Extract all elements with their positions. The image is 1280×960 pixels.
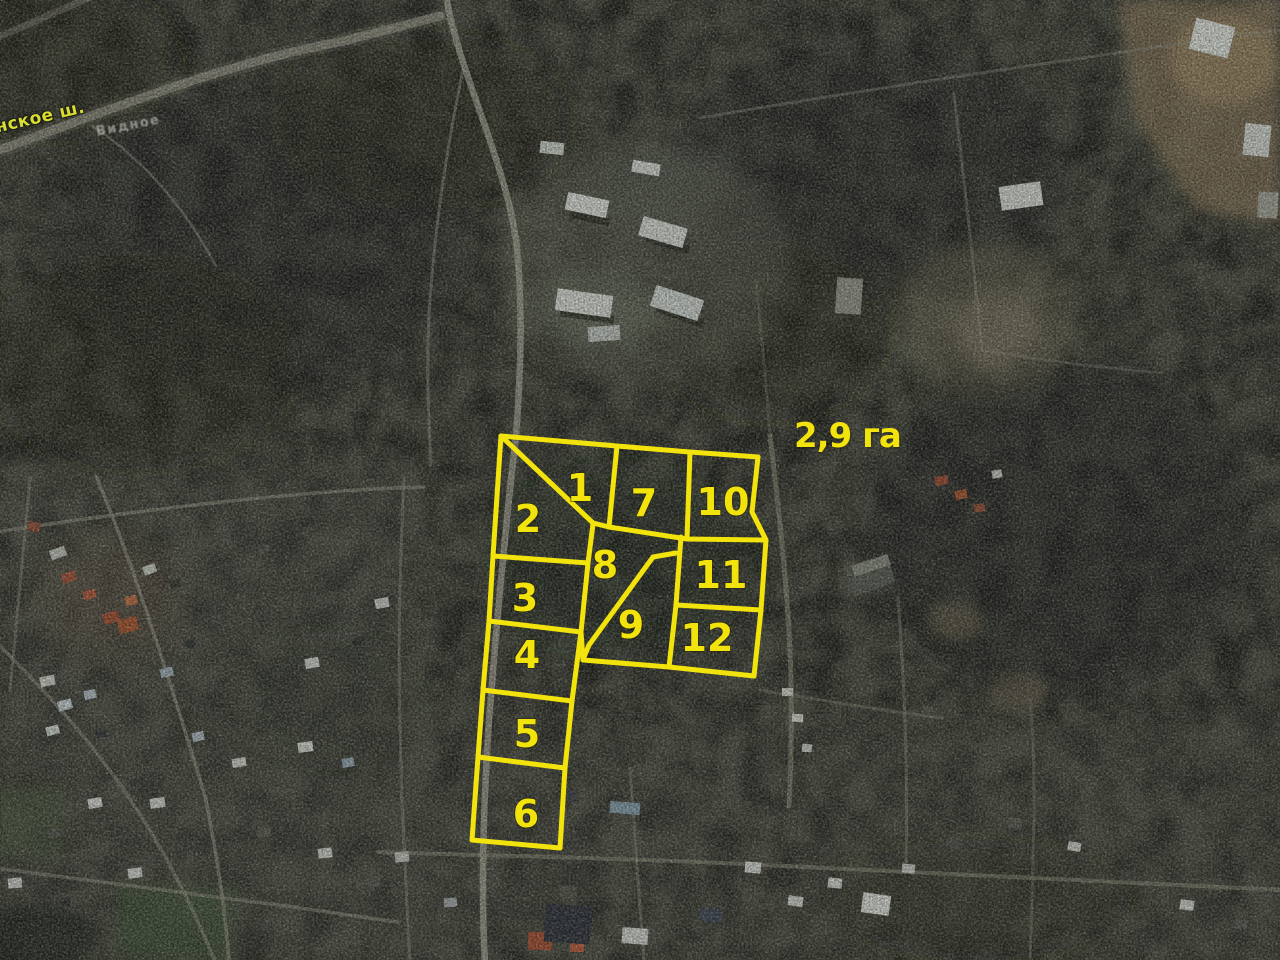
plot-boundary-line bbox=[676, 605, 761, 610]
plot-boundary-line bbox=[493, 556, 588, 563]
plot-boundary-line bbox=[669, 605, 676, 667]
plot-number-label: 11 bbox=[695, 553, 748, 597]
satellite-map: 123456789101112 нское ш. Видное 2,9 га bbox=[0, 0, 1280, 960]
plot-number-label: 4 bbox=[514, 633, 540, 677]
plot-boundary-line bbox=[483, 690, 572, 701]
plot-number-label: 7 bbox=[631, 481, 657, 525]
plot-boundary-line bbox=[489, 621, 581, 632]
plot-boundary-line bbox=[472, 840, 560, 848]
plot-number-label: 8 bbox=[592, 543, 618, 587]
area-size-label: 2,9 га bbox=[794, 418, 901, 455]
plot-number-label: 3 bbox=[512, 576, 538, 620]
plot-boundary-line bbox=[478, 757, 565, 768]
plot-boundary-line bbox=[560, 632, 581, 848]
plot-boundary-line bbox=[752, 457, 766, 676]
plot-number-label: 12 bbox=[681, 616, 734, 660]
plot-number-label: 2 bbox=[515, 497, 541, 541]
plot-boundary-line bbox=[609, 446, 617, 527]
plot-boundary-line bbox=[676, 537, 681, 605]
plot-number-label: 1 bbox=[567, 466, 593, 510]
plot-boundary-line bbox=[501, 436, 758, 457]
plot-number-label: 6 bbox=[513, 792, 539, 836]
plot-number-label: 5 bbox=[514, 712, 540, 756]
plot-number-label: 10 bbox=[697, 480, 750, 524]
plot-overlay: 123456789101112 bbox=[0, 0, 1280, 960]
plot-boundary-line bbox=[472, 436, 501, 840]
plot-boundary-line bbox=[653, 553, 676, 557]
plot-number-label: 9 bbox=[618, 603, 644, 647]
plot-boundary-line bbox=[687, 452, 690, 539]
